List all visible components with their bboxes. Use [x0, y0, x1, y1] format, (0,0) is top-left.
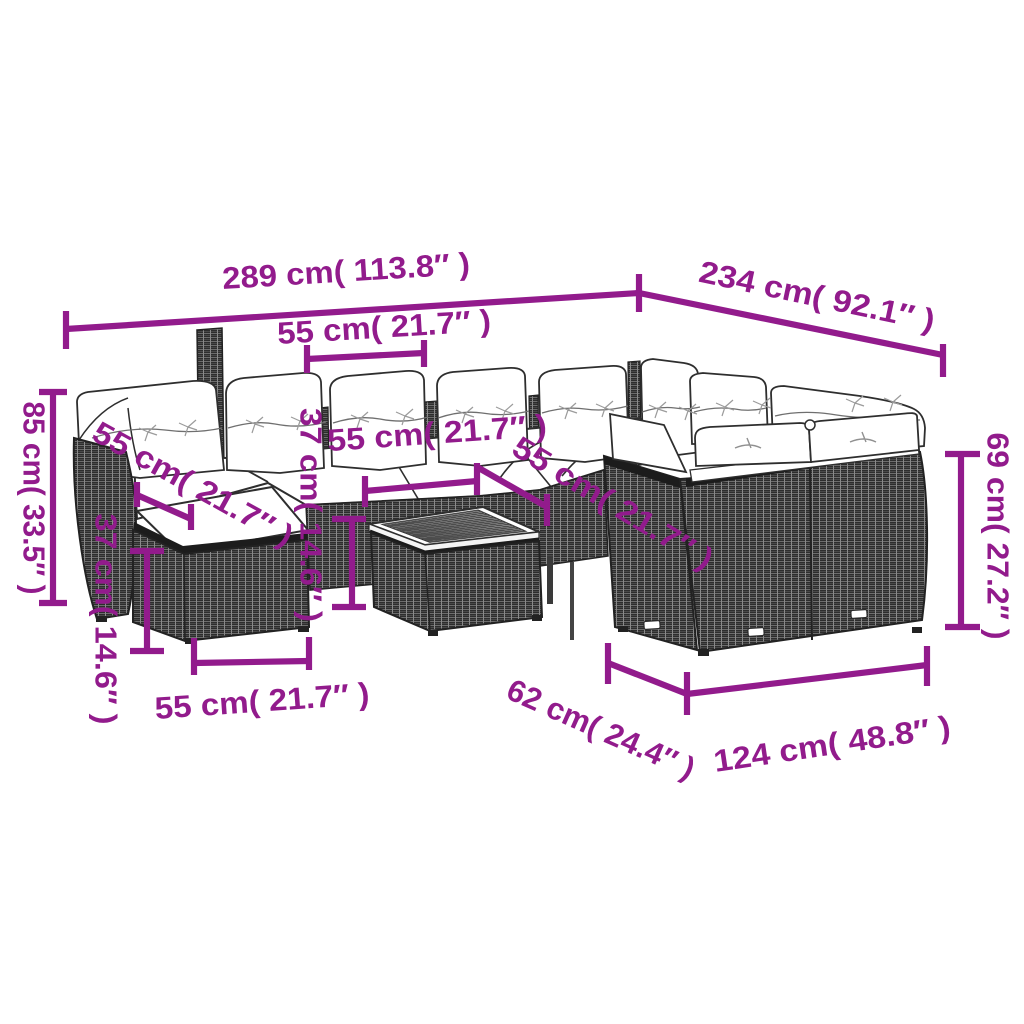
svg-text:69 cm( 27.2″ ): 69 cm( 27.2″ ) — [981, 433, 1016, 640]
svg-text:85 cm( 33.5″ ): 85 cm( 33.5″ ) — [17, 402, 52, 595]
svg-text:37 cm( 14.6″ ): 37 cm( 14.6″ ) — [294, 408, 329, 622]
svg-text:37 cm( 14.6″ ): 37 cm( 14.6″ ) — [89, 514, 124, 725]
